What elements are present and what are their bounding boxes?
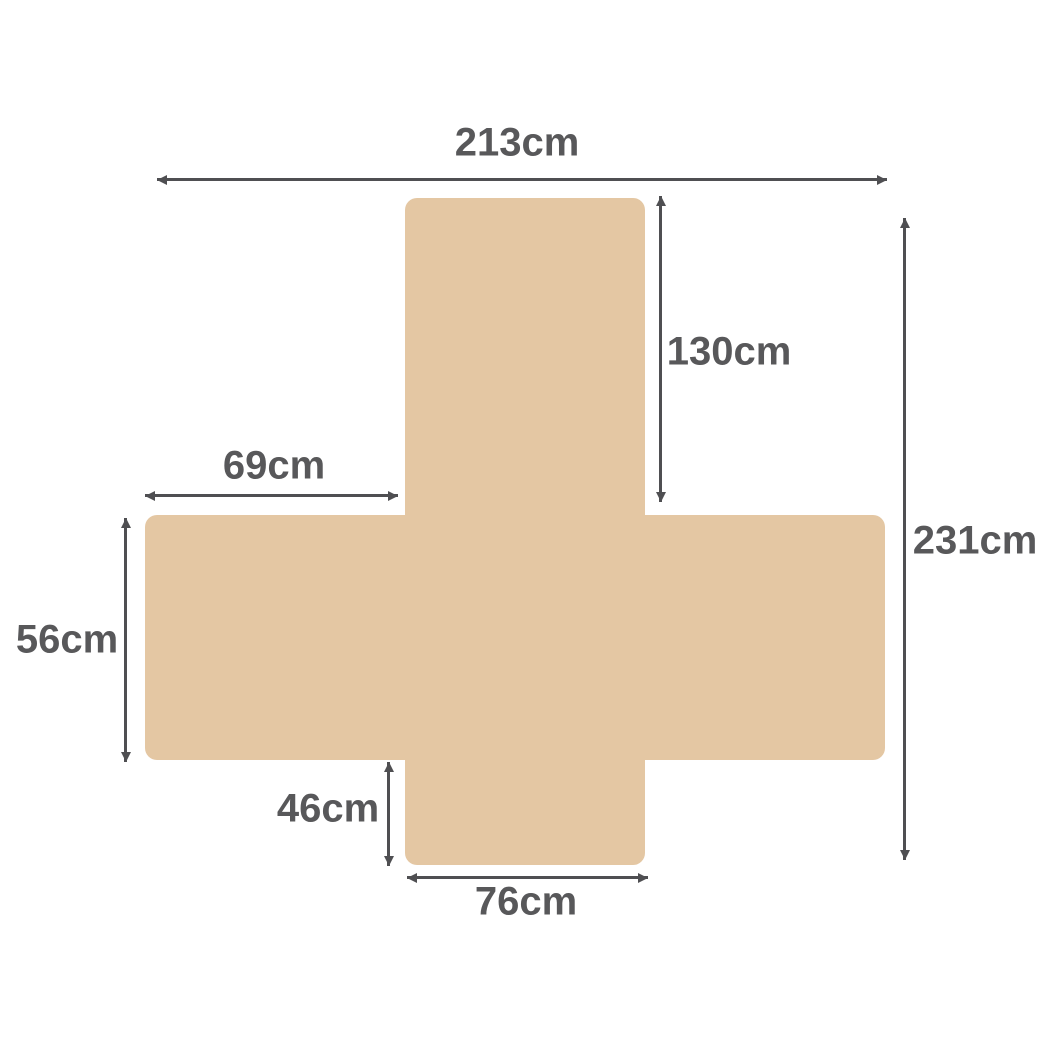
dimension-label-top-width: 213cm xyxy=(455,121,580,166)
dimension-arrow-top-width xyxy=(157,178,887,181)
cover-bottom-panel xyxy=(405,748,645,865)
dimension-label-total-height: 231cm xyxy=(913,519,1038,564)
dimension-label-left-extension: 69cm xyxy=(223,444,325,489)
dimension-label-front-height: 46cm xyxy=(277,787,379,832)
dimension-arrow-side-height xyxy=(124,518,127,762)
dimension-diagram: 213cm 130cm 69cm 231cm 56cm 46cm 76cm xyxy=(0,0,1050,1050)
dimension-label-bottom-width: 76cm xyxy=(475,880,577,925)
dimension-arrow-total-height xyxy=(903,218,906,860)
dimension-label-side-height: 56cm xyxy=(16,618,118,663)
cover-top-panel xyxy=(405,198,645,528)
dimension-arrow-back-height xyxy=(659,196,662,502)
dimension-label-back-height: 130cm xyxy=(667,330,792,375)
dimension-arrow-left-extension xyxy=(145,494,398,497)
dimension-arrow-front-height xyxy=(387,762,390,866)
cover-body-panel xyxy=(145,515,885,760)
